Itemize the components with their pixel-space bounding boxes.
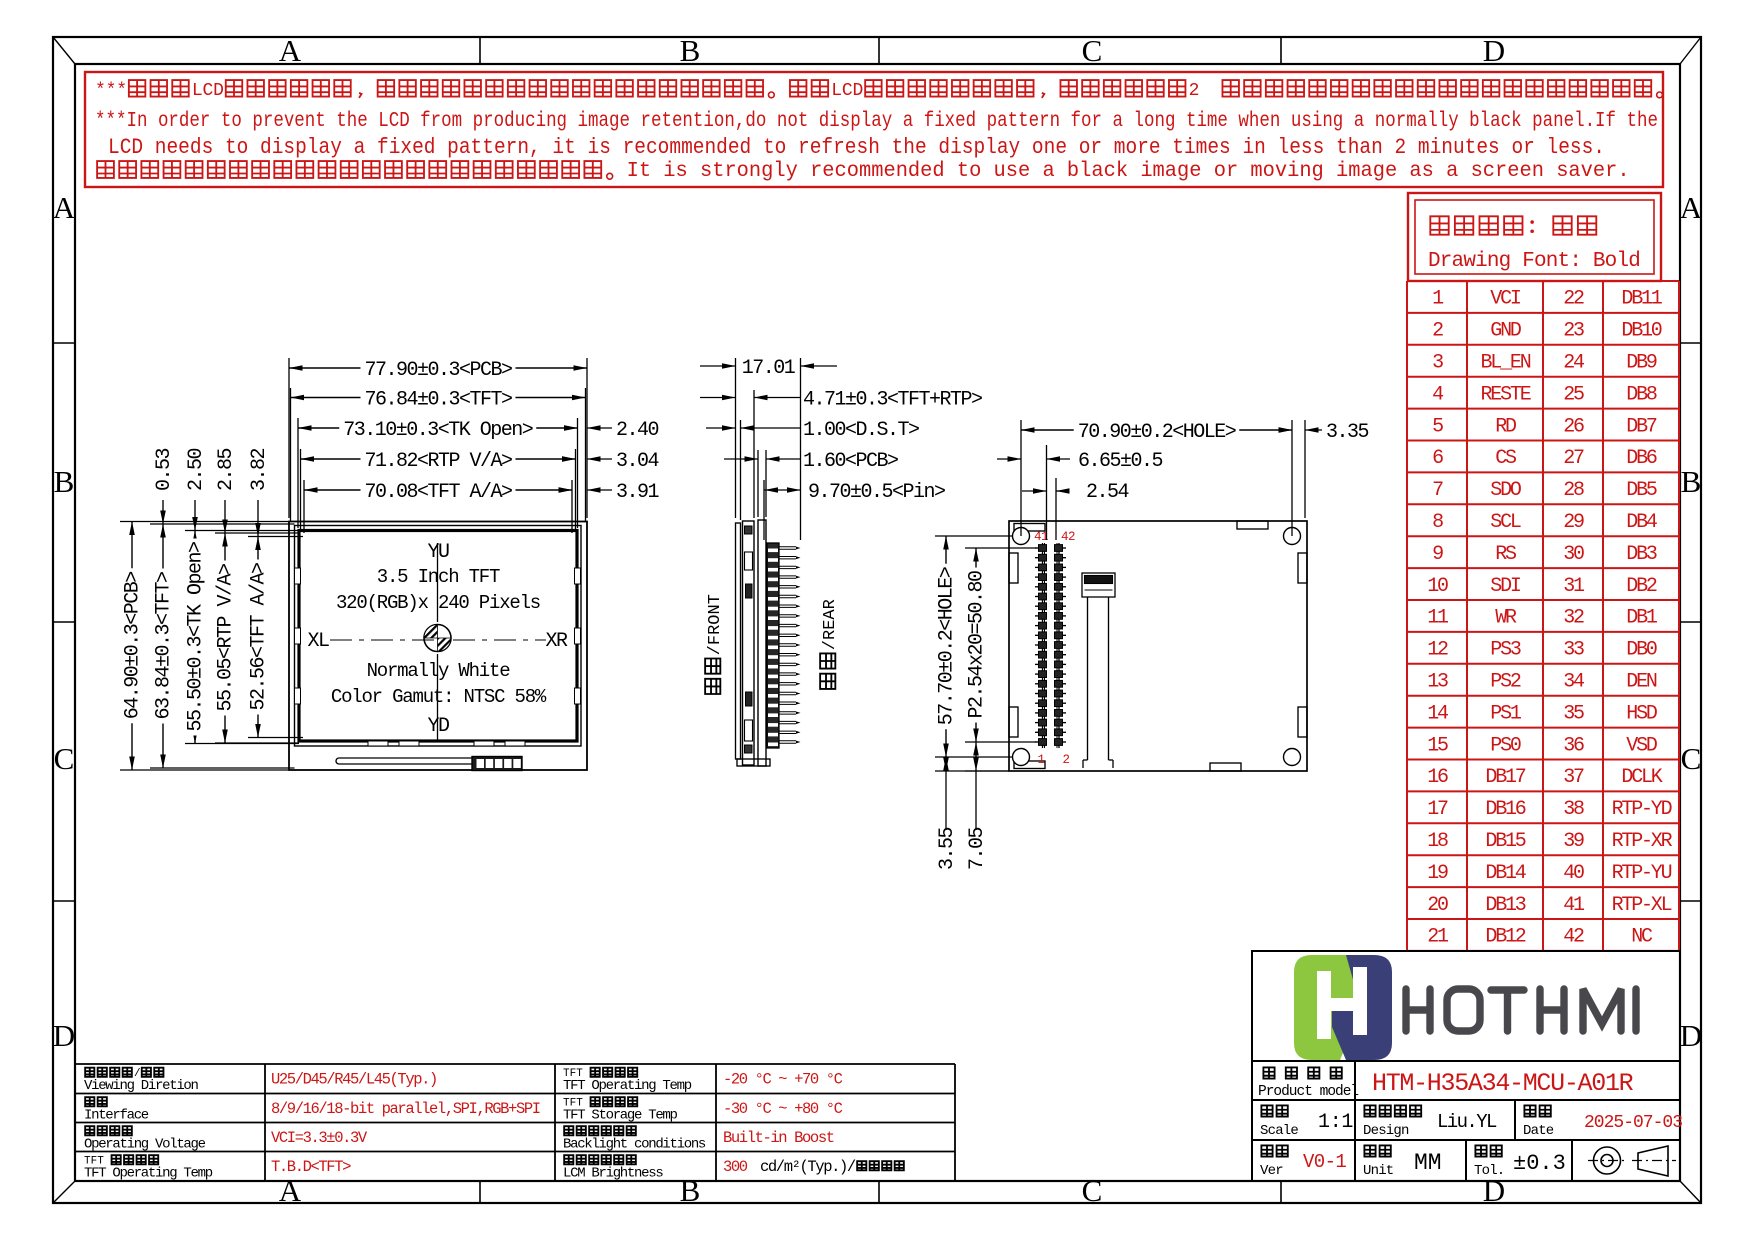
svg-text:XR: XR <box>545 630 568 653</box>
svg-text:6: 6 <box>1432 447 1443 470</box>
svg-text:RESTE: RESTE <box>1480 383 1530 406</box>
svg-text:Interface: Interface <box>84 1108 149 1124</box>
svg-text:A: A <box>1680 190 1703 225</box>
svg-text:Color Gamut: NTSC 58%: Color Gamut: NTSC 58% <box>331 686 547 708</box>
svg-text:XL: XL <box>307 630 329 653</box>
svg-text:DB8: DB8 <box>1626 383 1657 406</box>
svg-text:TFT Storage Temp: TFT Storage Temp <box>563 1108 678 1124</box>
svg-text:25: 25 <box>1563 383 1584 406</box>
svg-text:-30 °C ~ +80 °C: -30 °C ~ +80 °C <box>723 1100 843 1118</box>
svg-text:DB7: DB7 <box>1626 415 1657 438</box>
svg-text:Scale: Scale <box>1260 1123 1298 1139</box>
svg-text:33: 33 <box>1563 639 1584 662</box>
svg-text:Ver: Ver <box>1260 1163 1283 1179</box>
svg-text:14: 14 <box>1427 702 1448 725</box>
svg-text:GND: GND <box>1490 320 1521 343</box>
svg-text:21: 21 <box>1427 926 1449 949</box>
svg-text:15: 15 <box>1427 734 1448 757</box>
svg-text:2: 2 <box>1189 81 1200 101</box>
svg-text:2.85: 2.85 <box>215 449 238 492</box>
svg-text:DCLK: DCLK <box>1621 766 1662 789</box>
svg-text:300: 300 <box>723 1158 748 1176</box>
svg-text:WR: WR <box>1495 607 1517 630</box>
svg-text:19: 19 <box>1427 862 1448 885</box>
svg-text:LCM Brightness: LCM Brightness <box>563 1166 663 1182</box>
svg-text:70.08<TFT A/A>: 70.08<TFT A/A> <box>364 481 512 504</box>
svg-text:PS0: PS0 <box>1490 734 1521 757</box>
svg-text:RD: RD <box>1495 415 1516 438</box>
svg-text:D: D <box>1680 1018 1702 1053</box>
svg-text:DB13: DB13 <box>1485 894 1525 917</box>
svg-text:DB4: DB4 <box>1626 511 1657 534</box>
svg-text:3.55: 3.55 <box>936 828 959 871</box>
svg-text:18: 18 <box>1427 830 1448 853</box>
svg-text:32: 32 <box>1563 607 1584 630</box>
svg-text:40: 40 <box>1563 862 1584 885</box>
svg-text:26: 26 <box>1563 415 1584 438</box>
svg-text:RTP-XR: RTP-XR <box>1612 830 1673 853</box>
svg-text:3.82: 3.82 <box>248 449 271 492</box>
svg-text:8: 8 <box>1432 511 1443 534</box>
svg-text:DB1: DB1 <box>1626 607 1658 630</box>
svg-text:PS1: PS1 <box>1490 702 1522 725</box>
svg-text:C: C <box>54 741 75 776</box>
svg-text:42: 42 <box>1061 530 1075 544</box>
svg-text:16: 16 <box>1427 766 1448 789</box>
svg-text:55.50±0.3<TK Open>: 55.50±0.3<TK Open> <box>185 542 208 732</box>
svg-text:23: 23 <box>1563 320 1584 343</box>
svg-text:41: 41 <box>1563 894 1585 917</box>
svg-text:30: 30 <box>1563 543 1584 566</box>
svg-text:B: B <box>680 1173 701 1208</box>
svg-text:77.90±0.3<PCB>: 77.90±0.3<PCB> <box>364 359 512 382</box>
svg-text:52.56<TFT A/A>: 52.56<TFT A/A> <box>248 563 271 711</box>
svg-text:13: 13 <box>1427 671 1448 694</box>
svg-text:Drawing Font: Bold: Drawing Font: Bold <box>1428 250 1640 273</box>
svg-text:VCI=3.3±0.3V: VCI=3.3±0.3V <box>271 1129 368 1147</box>
svg-text:1.00<D.S.T>: 1.00<D.S.T> <box>803 419 919 442</box>
svg-text:B: B <box>54 464 75 499</box>
svg-text:3.04: 3.04 <box>616 450 659 473</box>
svg-text:34: 34 <box>1563 671 1584 694</box>
svg-text:HTM-H35A34-MCU-A01R: HTM-H35A34-MCU-A01R <box>1372 1069 1634 1098</box>
svg-text:DB17: DB17 <box>1485 766 1525 789</box>
svg-text:***In order to prevent the LCD: ***In order to prevent the LCD from prod… <box>95 109 1658 133</box>
svg-text:DB5: DB5 <box>1626 479 1657 502</box>
svg-text:Operating Voltage: Operating Voltage <box>84 1137 206 1153</box>
svg-text:A: A <box>279 1173 302 1208</box>
svg-text:SDO: SDO <box>1490 479 1521 502</box>
svg-text:73.10±0.3<TK Open>: 73.10±0.3<TK Open> <box>343 419 533 442</box>
svg-text:/FRONT: /FRONT <box>706 594 725 655</box>
svg-text:C: C <box>1082 33 1103 68</box>
svg-text:3: 3 <box>1432 352 1443 375</box>
svg-text:9.70±0.5<Pin>: 9.70±0.5<Pin> <box>808 481 945 504</box>
svg-text:4.71±0.3<TFT+RTP>: 4.71±0.3<TFT+RTP> <box>803 389 982 412</box>
svg-text:TFT Operating Temp: TFT Operating Temp <box>563 1078 692 1094</box>
svg-text:It is strongly recommended to: It is strongly recommended to use a blac… <box>627 159 1630 183</box>
svg-text:DB0: DB0 <box>1626 639 1657 662</box>
svg-text:DB9: DB9 <box>1626 352 1657 375</box>
svg-text:YD: YD <box>427 715 449 738</box>
svg-text:Liu.YL: Liu.YL <box>1437 1111 1497 1133</box>
svg-text:37: 37 <box>1563 766 1584 789</box>
svg-text:1: 1 <box>1037 753 1044 767</box>
svg-text:Viewing Diretion: Viewing Diretion <box>84 1078 199 1094</box>
svg-text:2: 2 <box>1432 320 1443 343</box>
svg-text:DB10: DB10 <box>1621 320 1661 343</box>
svg-text:31: 31 <box>1563 575 1585 598</box>
svg-text:PS2: PS2 <box>1490 671 1521 694</box>
svg-text:55.05<RTP V/A>: 55.05<RTP V/A> <box>215 564 238 712</box>
svg-text:DB3: DB3 <box>1626 543 1657 566</box>
svg-text:Tol.: Tol. <box>1474 1163 1504 1179</box>
svg-text:7.05: 7.05 <box>966 828 989 871</box>
svg-text:1.60<PCB>: 1.60<PCB> <box>803 450 898 473</box>
svg-text:VSD: VSD <box>1626 734 1657 757</box>
svg-text:DB12: DB12 <box>1485 926 1525 949</box>
svg-text:22: 22 <box>1563 288 1584 311</box>
svg-text:±0.3: ±0.3 <box>1513 1151 1566 1176</box>
svg-text:CS: CS <box>1495 447 1517 470</box>
svg-text:RTP-XL: RTP-XL <box>1612 894 1672 917</box>
svg-text:Product model: Product model <box>1258 1084 1358 1100</box>
svg-text:SDI: SDI <box>1490 575 1521 598</box>
svg-text:BL_EN: BL_EN <box>1480 352 1530 375</box>
svg-text:Normally White: Normally White <box>367 660 511 682</box>
svg-text:TFT Operating Temp: TFT Operating Temp <box>84 1166 213 1182</box>
svg-text:24: 24 <box>1563 352 1584 375</box>
svg-text:LCD needs to display a fixed p: LCD needs to display a fixed pattern, it… <box>108 135 1605 160</box>
svg-text:17.01: 17.01 <box>742 357 796 380</box>
svg-text:RS: RS <box>1495 543 1517 566</box>
svg-text:SCL: SCL <box>1490 511 1521 534</box>
svg-text:2.54: 2.54 <box>1086 481 1129 504</box>
svg-text:PS3: PS3 <box>1490 639 1521 662</box>
svg-text:-20 °C ~ +70 °C: -20 °C ~ +70 °C <box>723 1071 843 1089</box>
svg-text:DB11: DB11 <box>1621 288 1662 311</box>
svg-text:28: 28 <box>1563 479 1584 502</box>
svg-text:VCI: VCI <box>1490 288 1521 311</box>
svg-text:57.70±0.2<HOLE>: 57.70±0.2<HOLE> <box>936 567 959 725</box>
svg-text:NC: NC <box>1631 926 1653 949</box>
svg-text:DB15: DB15 <box>1485 830 1525 853</box>
svg-text:64.90±0.3<PCB>: 64.90±0.3<PCB> <box>122 572 145 720</box>
svg-text:10: 10 <box>1427 575 1448 598</box>
svg-text:1:1: 1:1 <box>1318 1111 1353 1134</box>
svg-text:***: *** <box>95 81 127 101</box>
svg-text:HSD: HSD <box>1626 702 1657 725</box>
svg-text:DEN: DEN <box>1626 671 1657 694</box>
svg-text:70.90±0.2<HOLE>: 70.90±0.2<HOLE> <box>1078 421 1236 444</box>
svg-text:6.65±0.5: 6.65±0.5 <box>1078 450 1163 473</box>
svg-text:B: B <box>680 33 701 68</box>
svg-text:A: A <box>279 33 302 68</box>
svg-text:71.82<RTP V/A>: 71.82<RTP V/A> <box>364 450 512 473</box>
svg-text:DB2: DB2 <box>1626 575 1657 598</box>
svg-text:39: 39 <box>1563 830 1584 853</box>
svg-text:D: D <box>1483 33 1505 68</box>
svg-text:9: 9 <box>1432 543 1443 566</box>
svg-text:2.40: 2.40 <box>616 419 659 442</box>
svg-text:RTP-YU: RTP-YU <box>1612 862 1672 885</box>
svg-text:3.5 Inch TFT: 3.5 Inch TFT <box>377 566 500 588</box>
svg-text:63.84±0.3<TFT>: 63.84±0.3<TFT> <box>153 572 176 720</box>
svg-text:3.35: 3.35 <box>1326 421 1369 444</box>
svg-text:0.53: 0.53 <box>153 449 176 492</box>
svg-text:DB6: DB6 <box>1626 447 1657 470</box>
svg-text:320(RGB)x 240 Pixels: 320(RGB)x 240 Pixels <box>336 592 540 614</box>
svg-text:7: 7 <box>1432 479 1443 502</box>
svg-text:4: 4 <box>1432 383 1443 406</box>
svg-text:8/9/16/18-bit parallel,SPI,RGB: 8/9/16/18-bit parallel,SPI,RGB+SPI <box>271 1100 540 1118</box>
svg-text:2.50: 2.50 <box>185 449 208 492</box>
svg-text:Design: Design <box>1363 1123 1409 1139</box>
svg-text:2025-07-03: 2025-07-03 <box>1584 1113 1682 1133</box>
svg-text:27: 27 <box>1563 447 1584 470</box>
svg-text:38: 38 <box>1563 798 1584 821</box>
svg-text:12: 12 <box>1427 639 1448 662</box>
svg-text:P2.54x20=50.80: P2.54x20=50.80 <box>966 571 989 719</box>
svg-text:MM: MM <box>1414 1150 1442 1176</box>
svg-text:cd/m²(Typ.)/: cd/m²(Typ.)/ <box>760 1158 856 1176</box>
svg-text:11: 11 <box>1427 607 1449 630</box>
svg-text:Unit: Unit <box>1363 1163 1393 1179</box>
svg-text:D: D <box>53 1018 75 1053</box>
svg-text:B: B <box>1681 464 1702 499</box>
svg-text:DB14: DB14 <box>1485 862 1525 885</box>
svg-text:A: A <box>53 190 76 225</box>
svg-text:C: C <box>1082 1173 1103 1208</box>
svg-text:3.91: 3.91 <box>616 481 660 504</box>
svg-text:Built-in Boost: Built-in Boost <box>723 1129 834 1147</box>
svg-text:U25/D45/R45/L45(Typ.): U25/D45/R45/L45(Typ.) <box>271 1071 437 1089</box>
svg-text:5: 5 <box>1432 415 1443 438</box>
svg-text:Date: Date <box>1523 1123 1554 1139</box>
svg-text:LCD: LCD <box>192 81 224 101</box>
svg-text:36: 36 <box>1563 734 1584 757</box>
svg-text:29: 29 <box>1563 511 1584 534</box>
svg-text:76.84±0.3<TFT>: 76.84±0.3<TFT> <box>364 388 512 411</box>
svg-text:35: 35 <box>1563 702 1584 725</box>
svg-text:YU: YU <box>427 541 449 564</box>
svg-text:Backlight conditions: Backlight conditions <box>563 1137 706 1153</box>
svg-text:DB16: DB16 <box>1485 798 1525 821</box>
svg-text:RTP-YD: RTP-YD <box>1612 798 1672 821</box>
svg-text:2: 2 <box>1062 753 1069 767</box>
svg-text:42: 42 <box>1563 926 1584 949</box>
svg-text:/REAR: /REAR <box>821 599 840 650</box>
svg-text:LCD: LCD <box>831 81 863 101</box>
svg-text:C: C <box>1681 741 1702 776</box>
svg-text:17: 17 <box>1427 798 1448 821</box>
svg-text:V0-1: V0-1 <box>1303 1151 1346 1173</box>
svg-text:T.B.D<TFT>: T.B.D<TFT> <box>271 1158 351 1176</box>
svg-text:20: 20 <box>1427 894 1448 917</box>
